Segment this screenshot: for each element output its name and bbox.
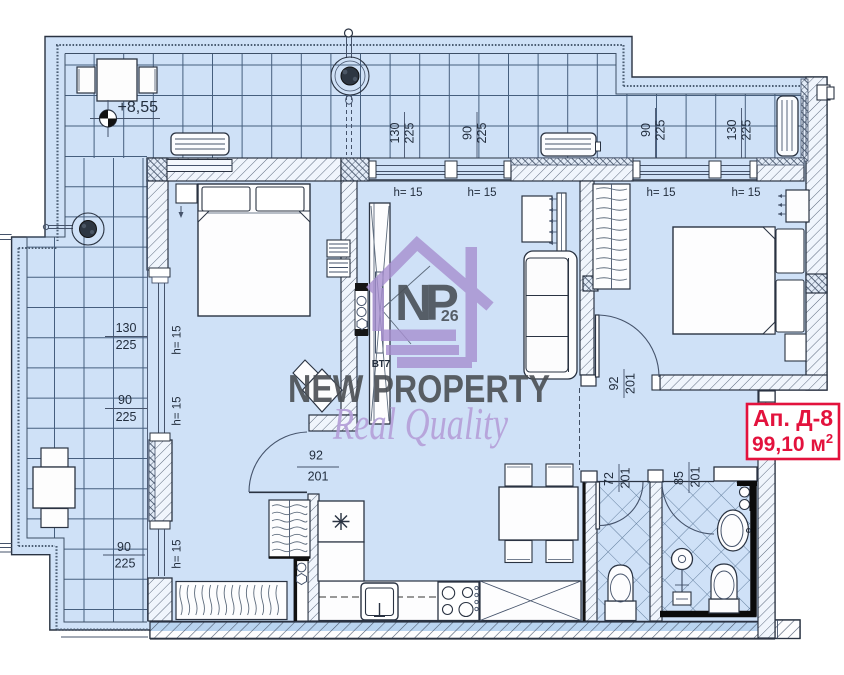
svg-text:h= 15: h= 15: [172, 539, 184, 568]
svg-text:130: 130: [725, 120, 739, 141]
svg-text:99,10 м2: 99,10 м2: [752, 431, 833, 456]
svg-text:130: 130: [116, 321, 137, 335]
svg-text:201: 201: [689, 467, 703, 488]
svg-text:201: 201: [624, 373, 638, 394]
svg-text:h= 15: h= 15: [393, 187, 422, 199]
svg-text:NP26: NP26: [395, 274, 459, 331]
svg-text:92: 92: [607, 377, 621, 391]
svg-text:225: 225: [116, 338, 137, 352]
svg-text:85: 85: [672, 471, 686, 485]
svg-text:225: 225: [475, 123, 489, 144]
svg-text:h= 15: h= 15: [731, 187, 760, 199]
svg-text:h= 15: h= 15: [646, 187, 675, 199]
svg-text:Real Quality: Real Quality: [332, 399, 508, 449]
svg-text:201: 201: [308, 470, 329, 484]
svg-text:225: 225: [115, 557, 136, 571]
svg-text:90: 90: [117, 540, 131, 554]
svg-text:201: 201: [619, 468, 633, 489]
svg-text:72: 72: [602, 472, 616, 486]
svg-text:h= 15: h= 15: [172, 396, 184, 425]
svg-text:h= 15: h= 15: [172, 325, 184, 354]
svg-text:225: 225: [116, 410, 137, 424]
svg-text:90: 90: [461, 126, 475, 140]
svg-text:92: 92: [309, 449, 323, 463]
svg-text:+8,55: +8,55: [118, 99, 159, 116]
svg-text:225: 225: [403, 123, 417, 144]
svg-text:Ап. Д-8: Ап. Д-8: [753, 405, 833, 431]
svg-text:h= 15: h= 15: [467, 187, 496, 199]
svg-text:130: 130: [388, 123, 402, 144]
svg-text:225: 225: [654, 120, 668, 141]
svg-text:225: 225: [740, 120, 754, 141]
svg-text:90: 90: [639, 123, 653, 137]
svg-text:90: 90: [118, 393, 132, 407]
